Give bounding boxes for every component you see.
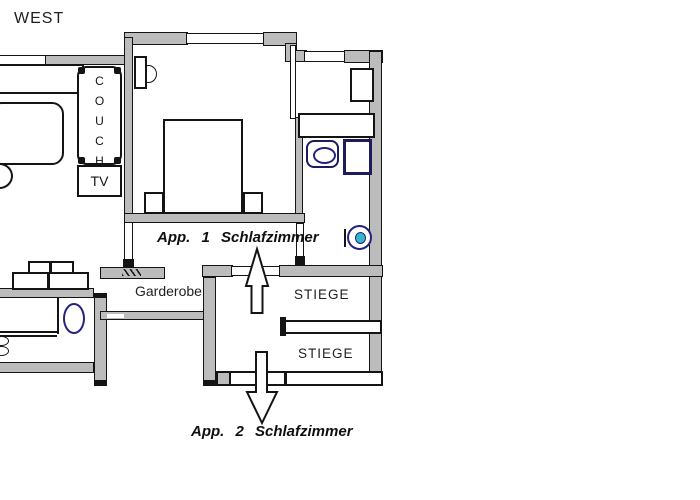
bath-sink (306, 140, 339, 168)
stove-burner (0, 336, 9, 346)
shower-tray (343, 139, 372, 175)
couch: COUCH (77, 66, 122, 165)
stair-landing (284, 320, 382, 334)
wall-hall-bottom-left (202, 265, 233, 277)
kitchen-cabinet (12, 272, 49, 290)
stiege-lower-label: STIEGE (298, 346, 354, 361)
wall-corridor-bottom (100, 311, 205, 320)
couch-corner (78, 67, 85, 74)
garderobe-label: Garderobe (135, 283, 202, 299)
app2-entry-down-arrow-icon (247, 352, 277, 423)
wall-cap (94, 293, 107, 298)
wall-tick (229, 373, 231, 384)
nightstand-right (243, 192, 263, 214)
toilet-bowl (355, 232, 366, 244)
west-label: WEST (14, 10, 64, 28)
table (0, 64, 84, 94)
app1-label: App. 1 Schlafzimmer (157, 229, 319, 246)
wall-bedroom-bath-thin (290, 45, 296, 119)
wall-stairs-left (203, 277, 216, 386)
side-table (0, 163, 13, 189)
bath-counter (298, 113, 375, 138)
wall-kitchen-bottom (0, 362, 94, 373)
window-bedroom-top (186, 33, 265, 44)
bed (163, 119, 243, 214)
landing-cap (280, 317, 286, 336)
wall-cap (295, 256, 305, 265)
kitchen-sink (63, 303, 85, 334)
couch-corner (114, 157, 121, 164)
kitchen-cabinet (28, 261, 51, 274)
wall-hatch (122, 269, 141, 276)
tv-label: TV (79, 167, 120, 195)
bedroom-wall-fixture (134, 56, 147, 89)
counter-edge-line (0, 331, 57, 333)
armchair (0, 102, 64, 165)
couch-label: COUCH (93, 74, 107, 163)
wall-bedroom-bottom (124, 213, 305, 223)
tv-stand: TV (77, 165, 122, 197)
kitchen-cabinet (48, 272, 89, 290)
wall-cap (203, 380, 216, 386)
window-bath-top (304, 51, 346, 62)
app1-entry-up-arrow-icon (246, 249, 268, 313)
toilet (347, 225, 372, 250)
wall-segment (218, 373, 229, 384)
counter-edge-line (0, 335, 57, 337)
stove-burner (0, 346, 9, 356)
floor-plan: COUCH TV WEST App. 1 Schlafzimmer Garder… (0, 0, 700, 500)
wall-hall-bottom-right (279, 265, 383, 277)
sink-basin (313, 147, 336, 164)
counter-divider (57, 298, 59, 334)
door-app1-entrance (231, 266, 281, 276)
wall-living-bedroom (124, 37, 133, 214)
wall-cap (123, 259, 134, 267)
wall-tick (284, 373, 287, 384)
toilet-tank-line (344, 229, 346, 247)
door-hall-living (124, 222, 133, 261)
wall-bedroom-top-left (124, 32, 188, 45)
app2-label: App. 2 Schlafzimmer (191, 423, 353, 440)
bath-cabinet (350, 68, 374, 102)
wall-garderobe-bar (100, 267, 165, 279)
wall-stairs-bottom (216, 371, 383, 386)
couch-corner (78, 157, 85, 164)
couch-corner (114, 67, 121, 74)
door-notch (107, 314, 124, 319)
nightstand-left (144, 192, 164, 214)
wall-cap (94, 380, 107, 386)
wall-kitchen-right (94, 293, 107, 386)
stiege-upper-label: STIEGE (294, 287, 350, 302)
kitchen-cabinet (50, 261, 74, 274)
